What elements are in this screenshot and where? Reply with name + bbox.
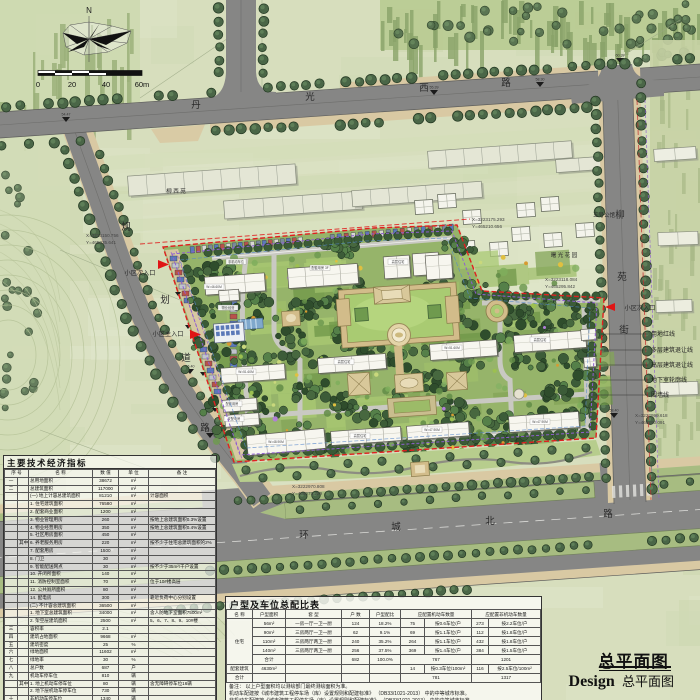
svg-text:曙 光 花 园: 曙 光 花 园 [551,251,578,259]
svg-text:围墙线: 围墙线 [651,391,669,399]
svg-text:40: 40 [102,80,110,89]
svg-text:W=51.60M: W=51.60M [238,370,254,374]
svg-text:用地红线: 用地红线 [651,330,675,338]
svg-text:环: 环 [299,530,309,541]
svg-text:柳 西 苑: 柳 西 苑 [166,187,186,195]
svg-text:Y=465295.842: Y=465295.842 [545,284,575,289]
svg-text:58.40: 58.40 [610,409,619,413]
svg-text:高层住宅: 高层住宅 [338,359,351,364]
svg-text:W=48.90M: W=48.90M [268,440,284,444]
svg-text:规: 规 [121,222,131,233]
svg-text:X=3222970.808: X=3222970.808 [292,484,325,489]
svg-text:Y=465290.091: Y=465290.091 [635,420,665,425]
svg-text:非机动车位: 非机动车位 [228,259,245,264]
svg-text:柳: 柳 [615,209,625,221]
svg-text:配套用房: 配套用房 [226,401,239,406]
svg-text:物业经营: 物业经营 [222,305,235,310]
svg-text:划: 划 [160,294,170,306]
svg-text:20: 20 [68,80,76,89]
svg-text:路: 路 [501,77,511,89]
svg-text:城: 城 [391,522,401,533]
svg-text:Y=465079.229: Y=465079.229 [292,491,322,496]
svg-text:苑: 苑 [617,271,627,283]
svg-text:X=3222999.618: X=3222999.618 [635,413,668,418]
svg-text:N: N [86,6,92,15]
svg-text:55.39: 55.39 [430,86,439,90]
svg-text:配套用房 3F: 配套用房 3F [311,265,328,270]
svg-text:高层住宅: 高层住宅 [392,259,405,264]
svg-text:高层住宅: 高层住宅 [534,337,547,342]
svg-text:60m: 60m [135,80,150,89]
svg-text:60.39: 60.39 [616,54,625,58]
svg-text:丹: 丹 [191,100,201,111]
svg-text:0: 0 [36,80,40,89]
svg-text:W=51.60M: W=51.60M [444,346,460,350]
svg-text:W=46.60M: W=46.60M [206,285,222,289]
svg-text:Y=465210.656: Y=465210.656 [472,224,502,229]
svg-text:高层住宅: 高层住宅 [354,433,367,438]
svg-text:Y=465035.641: Y=465035.641 [86,240,116,245]
svg-text:光: 光 [305,91,315,103]
svg-text:五号公馆: 五号公馆 [593,211,616,219]
svg-text:X=3223150.756: X=3223150.756 [86,233,119,238]
svg-text:路: 路 [603,508,613,520]
svg-text:X=3223118.084: X=3223118.084 [545,277,578,282]
svg-text:多层建筑退让线: 多层建筑退让线 [651,346,693,354]
svg-text:W=47.90M: W=47.90M [424,428,440,432]
svg-text:道: 道 [181,352,191,364]
svg-text:高层建筑退让线: 高层建筑退让线 [651,361,693,369]
svg-text:X=3223175.293: X=3223175.293 [472,217,505,222]
svg-text:小区主入口: 小区主入口 [153,330,184,338]
svg-text:小区次入口: 小区次入口 [125,269,156,277]
svg-text:W=47.90M: W=47.90M [532,420,548,424]
svg-text:安配电房: 安配电房 [228,416,241,421]
svg-text:54.47: 54.47 [62,113,71,117]
svg-text:小区次入口: 小区次入口 [625,304,656,312]
svg-text:路: 路 [200,422,210,434]
svg-text:地下室轮廓线: 地下室轮廓线 [651,376,687,384]
svg-text:北: 北 [485,516,495,527]
svg-text:58.30: 58.30 [536,78,545,82]
svg-text:西: 西 [419,83,429,94]
